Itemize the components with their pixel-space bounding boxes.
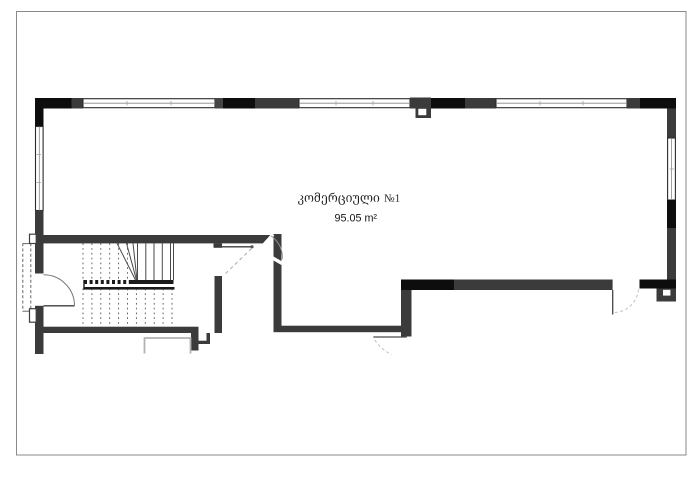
- svg-text:95.05 m²: 95.05 m²: [335, 213, 378, 225]
